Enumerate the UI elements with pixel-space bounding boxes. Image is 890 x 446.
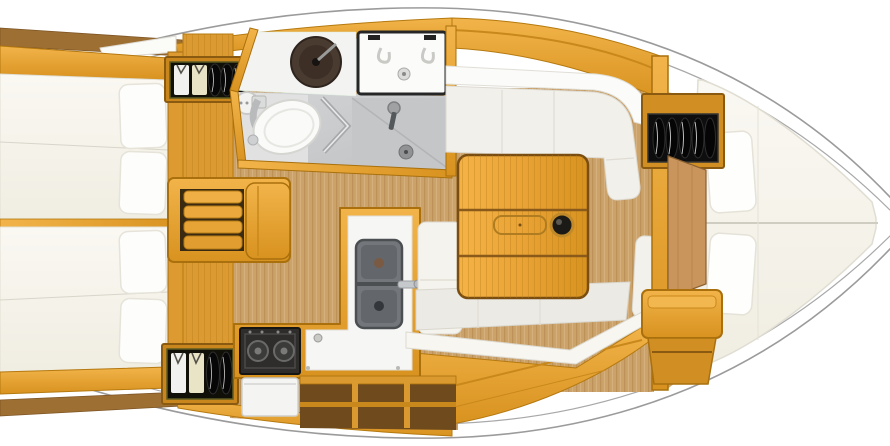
hanging-garment <box>666 118 678 158</box>
pillow <box>119 298 167 364</box>
hanging-shirt <box>171 353 186 393</box>
drain-lower <box>374 301 384 311</box>
step-tread <box>184 191 242 203</box>
hanging-garment <box>705 118 716 158</box>
wardrobe-starboard: Hanging locker with clothes <box>162 344 238 404</box>
drain-dot <box>402 72 406 76</box>
hanging-garment <box>692 118 704 158</box>
oven: Oven door <box>242 378 298 416</box>
hinge <box>424 35 436 40</box>
pillow <box>119 230 167 294</box>
pump-knob <box>248 135 258 145</box>
hanging-shirt <box>192 65 207 95</box>
companionway-steps: Companionway steps <box>168 178 290 262</box>
floorplan-svg: Hull outline Aft double cabin (top) <box>0 0 890 446</box>
knob <box>289 331 292 334</box>
dial-dot <box>240 102 243 105</box>
step-tread <box>184 206 242 218</box>
knob <box>249 331 252 334</box>
hanging-garment <box>207 352 220 394</box>
hanging-garment <box>679 118 691 158</box>
counter-latch <box>314 334 322 342</box>
cabinet-rail <box>300 376 456 384</box>
pillow <box>119 83 167 149</box>
burner-cap <box>281 348 288 355</box>
knob <box>261 331 264 334</box>
counter-screw <box>306 366 310 370</box>
hanging-shirt <box>174 65 189 95</box>
wardrobe-forward: Hanging locker with clothes <box>642 94 724 168</box>
round-basin: Round washbasin <box>291 37 341 87</box>
cabinet-shelf <box>300 402 456 407</box>
door-leaf <box>668 156 706 298</box>
head-compartment: Head with shower Round washbasin Vanity … <box>230 26 456 178</box>
sink-top <box>358 32 446 94</box>
saloon-table: Folding saloon table <box>458 155 588 298</box>
step-tread <box>184 221 242 233</box>
shower-drain-dot <box>404 150 408 154</box>
hanging-garment <box>653 118 665 158</box>
steps-landing <box>246 183 290 259</box>
berth-divider <box>0 219 184 227</box>
hanging-garment <box>220 352 232 394</box>
drain-upper <box>374 258 384 268</box>
forward-bench: Forward cabin bench <box>642 290 722 384</box>
bench-trim <box>648 296 716 308</box>
handle-dot <box>519 224 522 227</box>
cup-holder-glint <box>556 219 562 225</box>
burner-cap <box>255 348 262 355</box>
stove: Two-burner stove <box>240 328 300 374</box>
dial-dot <box>246 102 249 105</box>
step-tread <box>184 236 242 249</box>
hinge <box>368 35 380 40</box>
cup-holder <box>551 214 573 236</box>
hanging-garment <box>209 64 222 96</box>
sink-unit: Vanity sink unit <box>358 32 446 94</box>
floorplan-image: Hull outline Aft double cabin (top) <box>0 0 890 446</box>
knob <box>277 331 280 334</box>
pillow <box>119 151 167 215</box>
forward-door: Forward cabin door <box>668 156 706 298</box>
bench-step <box>648 338 716 384</box>
counter-screw <box>396 366 400 370</box>
hanging-shirt <box>189 353 204 393</box>
